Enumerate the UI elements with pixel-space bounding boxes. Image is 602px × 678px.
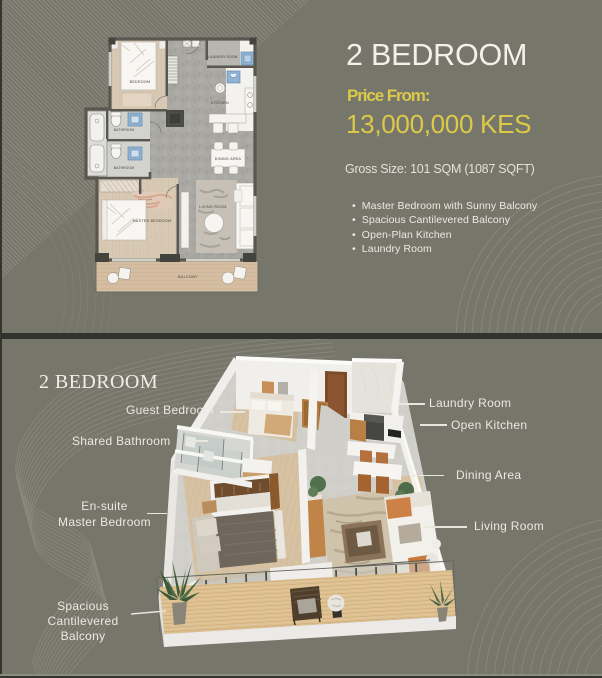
svg-text:BALCONY: BALCONY	[178, 275, 198, 279]
svg-text:BEDROOM: BEDROOM	[130, 80, 151, 84]
svg-text:LIVING ROOM: LIVING ROOM	[199, 205, 226, 209]
svg-text:DINING AREA: DINING AREA	[215, 157, 242, 161]
svg-text:BATHROOM: BATHROOM	[114, 166, 134, 170]
svg-text:MASTER BEDROOM: MASTER BEDROOM	[133, 219, 172, 223]
svg-text:LAUNDRY ROOM: LAUNDRY ROOM	[208, 55, 237, 59]
svg-text:KITCHEN: KITCHEN	[211, 101, 229, 105]
svg-text:BATHROOM: BATHROOM	[114, 128, 134, 132]
